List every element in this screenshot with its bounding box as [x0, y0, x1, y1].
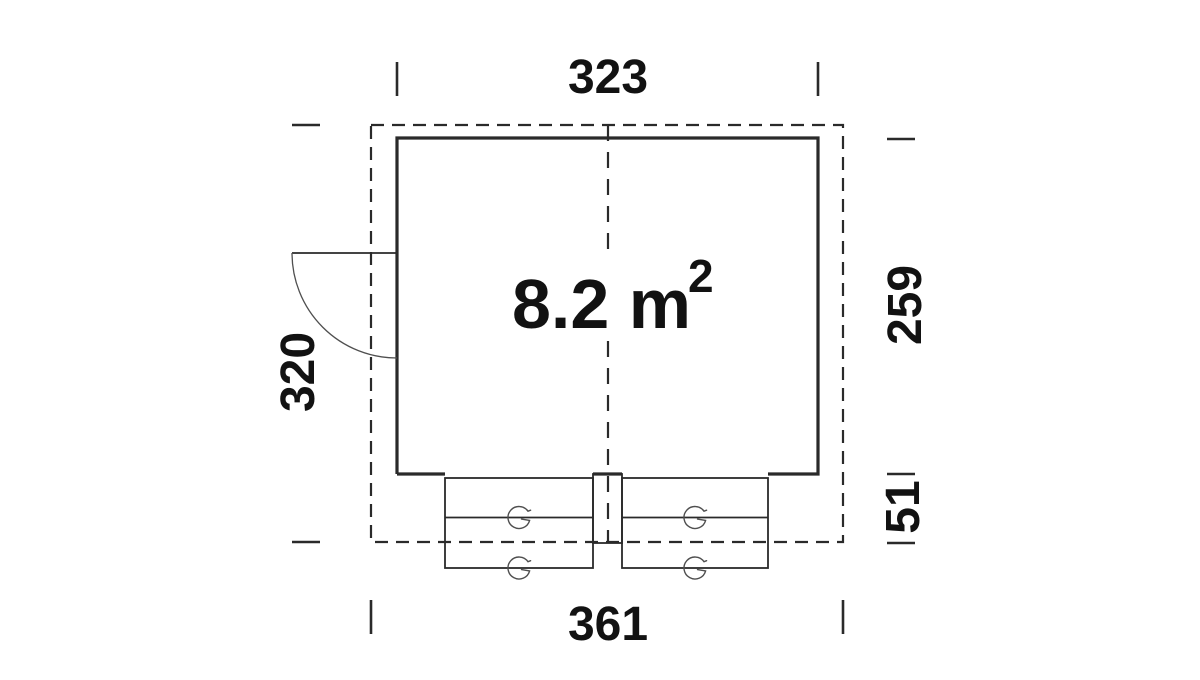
dim-label-top-width: 323: [568, 51, 648, 104]
dim-label-right-flap-depth: 51: [877, 480, 930, 533]
dim-label-right-inner-depth: 259: [879, 265, 932, 345]
area-label: 8.2 m: [512, 265, 691, 343]
dim-label-left-depth: 320: [272, 332, 325, 412]
counter-flap-right: [622, 478, 768, 568]
counter-flaps: [445, 474, 768, 579]
dimension-ticks: [292, 62, 915, 634]
floor-plan-canvas: 8.2 m 2 323 361 320 259 51: [0, 0, 1200, 680]
dim-label-bottom-width: 361: [568, 598, 648, 651]
counter-flap-left: [445, 478, 593, 568]
area-label-group: 8.2 m 2: [503, 250, 729, 343]
area-label-superscript: 2: [688, 250, 714, 302]
floor-plan-page: 8.2 m 2 323 361 320 259 51: [0, 0, 1200, 680]
